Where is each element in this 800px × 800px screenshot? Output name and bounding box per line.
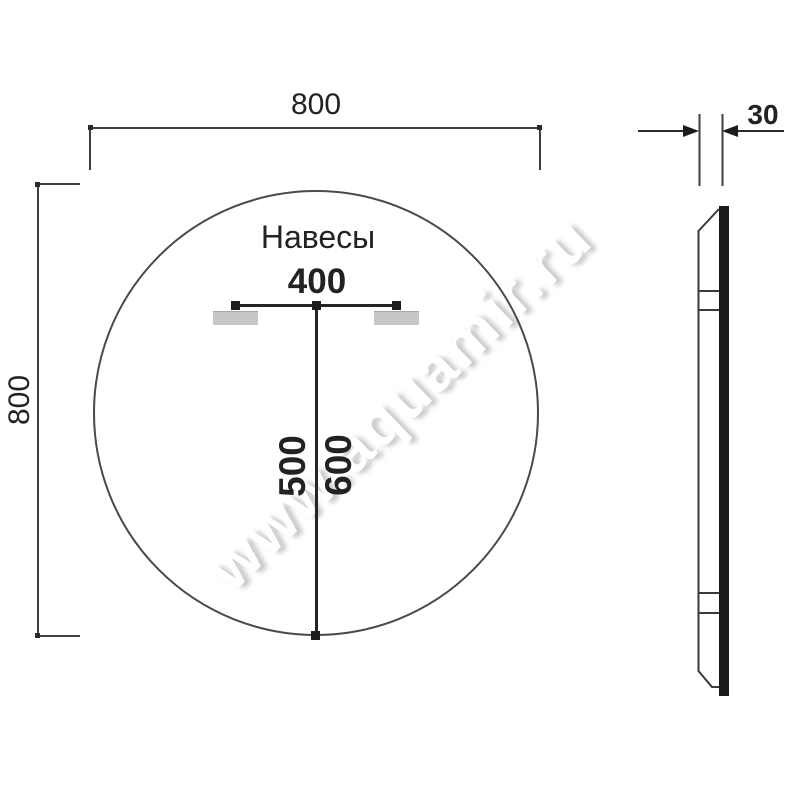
mount-bracket-left: [213, 311, 258, 325]
top-dimension-tick-left: [89, 128, 91, 170]
technical-drawing-canvas: www.aquamir.ru 800 800 Навесы 400 500 60…: [0, 0, 800, 800]
mount-spacing-label: 400: [267, 262, 367, 302]
side-glass-bar: [719, 206, 729, 696]
top-dimension-tick-right: [539, 128, 541, 170]
mounts-title: Навесы: [238, 219, 398, 256]
left-height-label: 800: [4, 365, 36, 435]
mount-height-label-500: 500: [273, 416, 313, 516]
top-dimension-end-left: [88, 125, 93, 130]
top-dimension-line: [90, 127, 540, 129]
top-width-label: 800: [266, 88, 366, 122]
thickness-arrow-right-icon: [683, 125, 699, 137]
mount-height-label-600: 600: [319, 415, 359, 515]
mount-spacing-end-left: [231, 301, 240, 310]
mount-spacing-center-node: [312, 301, 321, 310]
side-backpanel-outline: [699, 209, 720, 687]
left-dimension-tick-bottom: [38, 635, 80, 637]
left-dimension-end-top: [35, 182, 40, 187]
center-line-bottom-node: [311, 631, 320, 640]
side-profile-view: [630, 95, 800, 710]
thickness-arrow-left-icon: [722, 125, 738, 137]
left-dimension-line: [37, 184, 39, 636]
thickness-label: 30: [738, 99, 788, 131]
left-dimension-end-bottom: [35, 633, 40, 638]
top-dimension-end-right: [537, 125, 542, 130]
mount-spacing-end-right: [392, 301, 401, 310]
mount-bracket-right: [374, 311, 419, 325]
left-dimension-tick-top: [38, 183, 80, 185]
